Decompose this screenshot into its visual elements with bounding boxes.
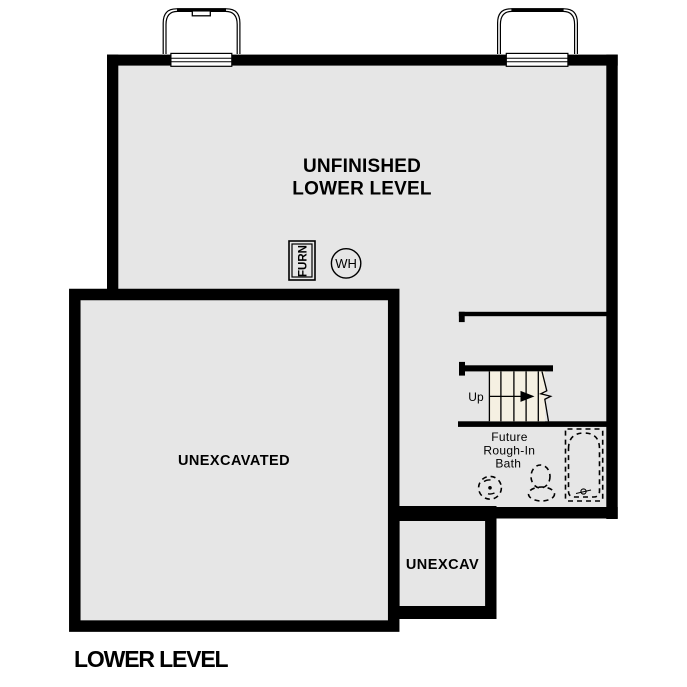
svg-text:WH: WH bbox=[335, 256, 357, 271]
svg-text:Bath: Bath bbox=[495, 457, 521, 471]
svg-text:Rough-In: Rough-In bbox=[483, 443, 535, 457]
svg-text:LOWER LEVEL: LOWER LEVEL bbox=[74, 646, 229, 672]
svg-text:UNFINISHED: UNFINISHED bbox=[303, 156, 421, 177]
svg-text:UNEXCAV: UNEXCAV bbox=[406, 557, 479, 573]
svg-text:Up: Up bbox=[468, 390, 484, 404]
svg-text:FURN: FURN bbox=[298, 245, 310, 277]
svg-text:LOWER LEVEL: LOWER LEVEL bbox=[292, 179, 432, 200]
svg-text:UNEXCAVATED: UNEXCAVATED bbox=[178, 453, 290, 469]
svg-text:Future: Future bbox=[491, 430, 528, 444]
